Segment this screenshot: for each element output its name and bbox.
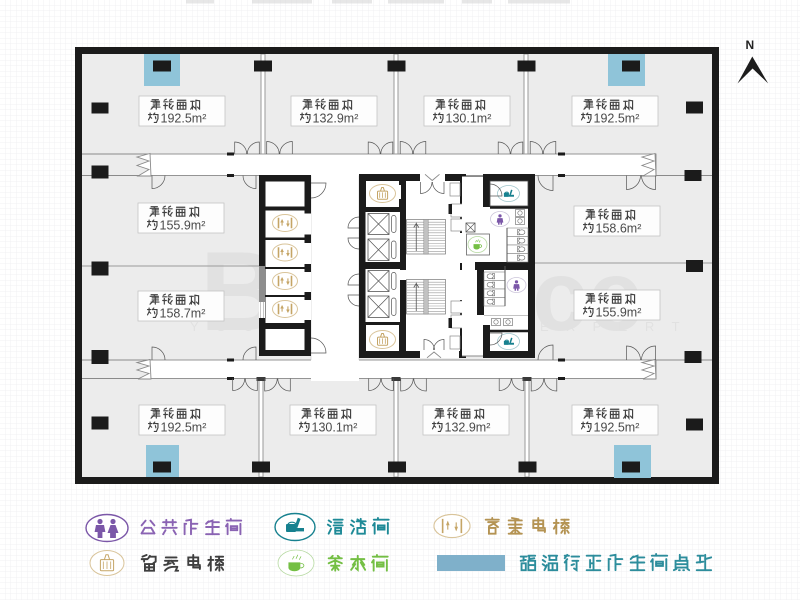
svg-text:155.9m²: 155.9m²	[596, 306, 642, 320]
svg-text:192.5m²: 192.5m²	[161, 421, 207, 435]
svg-text:130.1m²: 130.1m²	[312, 421, 358, 435]
svg-text:130.1m²: 130.1m²	[446, 112, 492, 126]
svg-text:192.5m²: 192.5m²	[594, 421, 640, 435]
svg-text:N: N	[746, 38, 755, 52]
svg-text:E X P E R T: E X P E R T	[540, 319, 687, 334]
svg-text:158.7m²: 158.7m²	[160, 307, 206, 321]
svg-text:132.9m²: 132.9m²	[313, 112, 359, 126]
svg-text:155.9m²: 155.9m²	[160, 219, 206, 233]
svg-text:132.9m²: 132.9m²	[445, 421, 491, 435]
svg-text:158.6m²: 158.6m²	[596, 222, 642, 236]
svg-text:192.5m²: 192.5m²	[594, 112, 640, 126]
svg-text:192.5m²: 192.5m²	[161, 112, 207, 126]
